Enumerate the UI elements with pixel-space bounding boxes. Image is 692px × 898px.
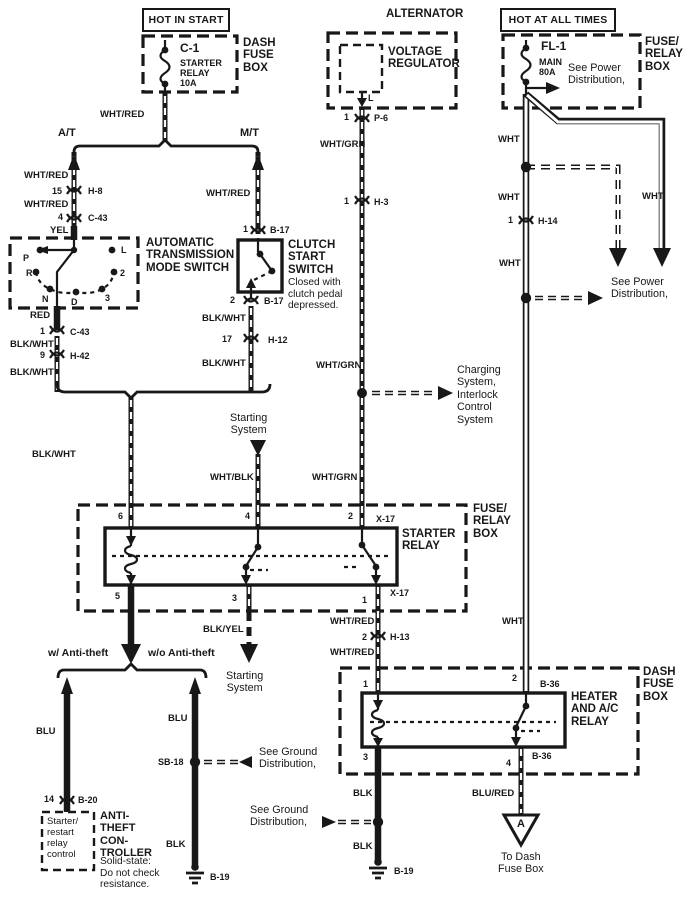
position-2: 2 xyxy=(120,268,125,278)
arrow-up-with-anti-theft xyxy=(61,677,73,694)
clutch-start-switch-outline xyxy=(238,240,282,292)
arrow-starting-system-in xyxy=(250,440,266,456)
branch-label-at: A/T xyxy=(58,127,76,139)
connector-c43-lower: C-43 xyxy=(70,327,90,337)
wiring-diagram-page: HOT IN START HOT AT ALL TIMES ALTERNATOR… xyxy=(0,0,692,898)
dash-fuse-box-label-top: DASH FUSE BOX xyxy=(243,37,276,74)
junction-charging xyxy=(357,388,367,398)
wire-label-whtred-c1: WHT/RED xyxy=(100,110,144,121)
wire-label-red: RED xyxy=(30,311,50,322)
wire-label-whtred-t1b: WHT/RED xyxy=(330,648,374,659)
alternator-title: ALTERNATOR xyxy=(386,8,463,20)
position-n: N xyxy=(42,294,49,304)
wire-at-branch xyxy=(68,152,80,240)
connector-p6: P-6 xyxy=(374,113,388,123)
wire-dashed-bent xyxy=(526,167,618,250)
connector-b17-lower: B-17 xyxy=(264,296,284,306)
pin-h42: 9 xyxy=(40,350,45,360)
terminal-2: 2 xyxy=(348,511,353,521)
hot-at-all-times-box: HOT AT ALL TIMES xyxy=(500,8,616,32)
clutch-switch-note: Closed with clutch pedal depressed. xyxy=(288,277,342,312)
connector-b20: B-20 xyxy=(78,795,98,805)
see-ground-left-label: See Ground Distribution, xyxy=(259,746,317,771)
connector-b36-bottom: B-36 xyxy=(532,751,552,761)
with-anti-theft-label: w/ Anti-theft xyxy=(48,648,108,660)
fuse-c1-id: C-1 xyxy=(180,42,199,55)
clutch-switch-internals xyxy=(246,238,275,298)
wire-label-blk-left: BLK xyxy=(166,840,186,851)
wire-label-wht-4: WHT xyxy=(642,192,664,203)
voltage-regulator-box-outline xyxy=(340,45,382,92)
wire-label-wht-3: WHT xyxy=(499,259,521,270)
triangle-a-label: A xyxy=(517,818,525,830)
arrow-down-power-2 xyxy=(609,248,627,267)
terminal-3: 3 xyxy=(232,593,237,603)
heater-terminal-4: 4 xyxy=(506,758,511,768)
wire-wht-bent xyxy=(526,94,662,250)
charging-system-label: Charging System, Interlock Control Syste… xyxy=(457,364,501,426)
connector-h8: H-8 xyxy=(88,186,103,196)
wire-label-yel: YEL xyxy=(50,226,68,237)
wire-label-whtgrn-3: WHT/GRN xyxy=(312,473,357,484)
heater-terminal-2: 2 xyxy=(512,673,517,683)
hot-in-start-box: HOT IN START xyxy=(142,8,230,32)
pin-b20: 14 xyxy=(44,794,54,804)
arrow-see-ground-left xyxy=(239,756,252,768)
connector-h3: H-3 xyxy=(374,197,389,207)
arrow-charging-right xyxy=(438,386,453,400)
connector-x17-top: X-17 xyxy=(376,514,395,524)
see-power-top-label: See Power Distribution, xyxy=(568,62,625,87)
wire-label-whtblk: WHT/BLK xyxy=(210,473,254,484)
wire-label-whtred-at2: WHT/RED xyxy=(24,200,68,211)
junction-wht-lower xyxy=(521,293,531,303)
pin-b17-lower: 2 xyxy=(230,295,235,305)
heater-terminal-1: 1 xyxy=(363,679,368,689)
brace-starter-coil-feed xyxy=(57,384,270,398)
fuse-relay-box-label-middle: FUSE/ RELAY BOX xyxy=(473,503,511,540)
connector-h14: H-14 xyxy=(538,216,558,226)
heater-relay-internals xyxy=(370,693,556,747)
position-3: 3 xyxy=(105,293,110,303)
pin-c43-upper: 4 xyxy=(58,212,63,222)
hot-at-all-times-label: HOT AT ALL TIMES xyxy=(509,14,608,26)
to-dash-fuse-box-label: To Dash Fuse Box xyxy=(498,851,544,876)
wire-label-blkwht-center: BLK/WHT xyxy=(32,450,76,461)
arrow-up-at xyxy=(68,154,80,170)
wire-label-whtgrn-2: WHT/GRN xyxy=(316,361,361,372)
fuse-c1-desc: STARTER RELAY 10A xyxy=(180,58,222,88)
arrow-see-ground-right xyxy=(322,816,336,828)
junction-ground-dist xyxy=(373,817,383,827)
arrow-down-anti-theft xyxy=(121,644,141,664)
pin-h13: 2 xyxy=(362,632,367,642)
arrow-up-mt xyxy=(252,154,264,170)
wire-label-blkwht-mt1: BLK/WHT xyxy=(202,314,246,325)
arrow-starting-system-out xyxy=(240,644,258,663)
brace-at-mt-split xyxy=(74,140,258,152)
heater-ac-relay-outline xyxy=(362,693,565,747)
heater-relay-title: HEATER AND A/C RELAY xyxy=(571,691,619,728)
wire-label-blkyel: BLK/YEL xyxy=(203,625,244,636)
arrow-see-power-right xyxy=(588,291,603,305)
arrow-see-power-internal xyxy=(546,82,560,94)
pin-h3: 1 xyxy=(344,196,349,206)
terminal-6: 6 xyxy=(118,511,123,521)
ground-b19-right: B-19 xyxy=(394,866,414,876)
wire-label-wht-5: WHT xyxy=(502,617,524,628)
alternator-internals xyxy=(357,92,367,107)
position-d: D xyxy=(71,297,78,307)
wire-label-whtred-t1a: WHT/RED xyxy=(330,617,374,628)
ground-symbol-right xyxy=(369,858,387,878)
see-power-right-label: See Power Distribution, xyxy=(611,276,668,301)
wire-label-blkwht-at1: BLK/WHT xyxy=(10,340,54,351)
terminal-5: 5 xyxy=(115,591,120,601)
anti-theft-title: ANTI- THEFT CON- TROLLER xyxy=(100,810,152,859)
wire-label-blkwht-mt2: BLK/WHT xyxy=(202,359,246,370)
terminal-1: 1 xyxy=(362,595,367,605)
fuse-fl1-desc: MAIN 80A xyxy=(539,57,562,77)
wiring-artwork xyxy=(0,0,692,898)
pin-c43-lower: 1 xyxy=(40,326,45,336)
wire-label-blkwht-at2: BLK/WHT xyxy=(10,368,54,379)
at-mode-switch-title: AUTOMATIC TRANSMISSION MODE SWITCH xyxy=(146,237,234,274)
brace-anti-theft-split xyxy=(58,664,206,678)
ground-b19-left: B-19 xyxy=(210,872,230,882)
fuse-relay-box-label-top: FUSE/ RELAY BOX xyxy=(645,36,683,73)
connector-b36-top: B-36 xyxy=(540,679,560,689)
connector-sb18: SB-18 xyxy=(158,757,184,767)
wire-label-whtgrn-1: WHT/GRN xyxy=(320,140,365,151)
connector-b17-upper: B-17 xyxy=(270,225,290,235)
anti-theft-note: Solid-state: Do not check resistance. xyxy=(100,856,159,891)
starter-relay-title: STARTER RELAY xyxy=(402,528,455,553)
connector-h12: H-12 xyxy=(268,335,288,345)
junction-wht-upper xyxy=(521,162,531,172)
pin-h14: 1 xyxy=(508,215,513,225)
arrow-down-power-1 xyxy=(653,248,671,267)
heater-terminal-3: 3 xyxy=(363,752,368,762)
terminal-l-label: L xyxy=(368,93,374,103)
branch-label-mt: M/T xyxy=(240,127,259,139)
wire-label-whtred-mt: WHT/RED xyxy=(206,189,250,200)
connector-c43-upper: C-43 xyxy=(88,213,108,223)
fuse-symbol-c1 xyxy=(161,40,170,92)
wire-label-blk-bot2: BLK xyxy=(353,842,373,853)
connector-x17-bottom: X-17 xyxy=(390,588,409,598)
wire-label-wht-1: WHT xyxy=(498,135,520,146)
position-p: P xyxy=(23,253,29,263)
clutch-switch-title: CLUTCH START SWITCH xyxy=(288,239,335,276)
connector-h13: H-13 xyxy=(390,632,410,642)
starting-system-out-label: Starting System xyxy=(226,670,263,695)
pin-h12: 17 xyxy=(222,334,232,344)
position-l: L xyxy=(121,245,127,255)
starting-system-in-label: Starting System xyxy=(230,412,267,437)
ground-symbol-left xyxy=(186,863,204,883)
pin-b17-upper: 1 xyxy=(243,224,248,234)
starter-relay-internals xyxy=(112,528,390,585)
wire-mt-branch xyxy=(252,152,264,234)
anti-theft-inner-label: Starter/ restart relay control xyxy=(47,817,78,861)
without-anti-theft-label: w/o Anti-theft xyxy=(148,648,215,660)
hot-in-start-label: HOT IN START xyxy=(148,14,223,26)
see-ground-right-label: See Ground Distribution, xyxy=(250,804,308,829)
wire-label-blured: BLU/RED xyxy=(472,789,514,800)
wire-label-whtred-at1: WHT/RED xyxy=(24,171,68,182)
wire-label-blu-right: BLU xyxy=(168,714,188,725)
terminal-4: 4 xyxy=(245,511,250,521)
junction-sb18 xyxy=(190,757,200,767)
arrow-up-without-anti-theft xyxy=(189,677,201,694)
wire-label-wht-2: WHT xyxy=(498,193,520,204)
pin-p6: 1 xyxy=(344,112,349,122)
dash-fuse-box-label-bottom: DASH FUSE BOX xyxy=(643,666,676,703)
fuse-fl1-id: FL-1 xyxy=(541,40,566,53)
wire-label-blk-bot1: BLK xyxy=(353,789,373,800)
connector-h42: H-42 xyxy=(70,351,90,361)
wire-label-blu-left: BLU xyxy=(36,727,56,738)
position-r: R xyxy=(26,268,33,278)
voltage-regulator-label: VOLTAGE REGULATOR xyxy=(388,46,460,71)
pin-h8: 15 xyxy=(52,186,62,196)
